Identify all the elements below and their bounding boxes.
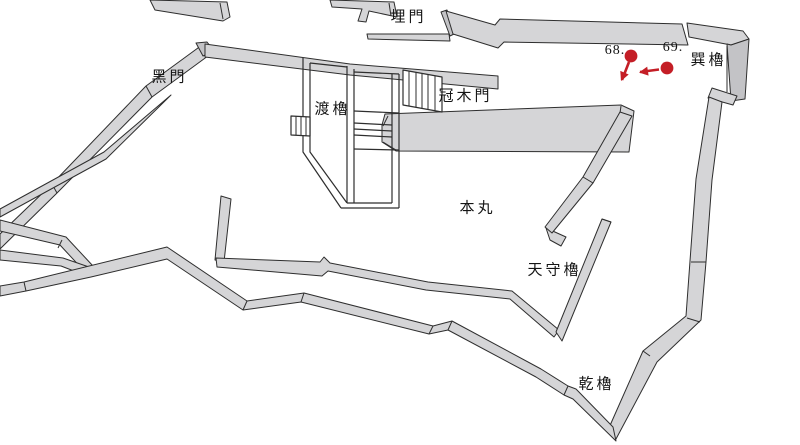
label-tatsumi-yagura: 巽櫓 [687,49,726,70]
tenshu-bastion-walls [546,219,611,341]
label-marker-68: 68. [605,43,626,59]
label-uzumimon: 埋門 [387,6,426,27]
northwest-inner-wall-band [205,44,498,89]
marker-69-dot[interactable] [661,62,674,75]
castle-map: 埋門 黑門 渡櫓 冠木門 巽櫓 本丸 天守櫓 乾櫓 68. 69. [0,0,800,445]
label-honmaru: 本丸 [456,197,495,218]
label-marker-69: 69. [663,40,684,56]
marker-69[interactable] [639,62,673,76]
label-inui-yagura: 乾櫓 [575,373,614,394]
steps-block [291,116,310,136]
castle-plan-drawing [0,0,800,445]
honmaru-north-wall [382,105,634,152]
label-watari-yagura: 渡櫓 [311,98,350,119]
left-ramparts-walls [0,0,231,276]
marker-68-dot[interactable] [625,50,638,63]
inner-south-wall [216,257,559,337]
label-kuromon: 黑門 [148,66,187,87]
north-rampart-walls [330,0,688,48]
label-tenshu-yagura: 天守櫓 [524,259,581,280]
label-kabuki-mon: 冠木門 [435,85,492,106]
